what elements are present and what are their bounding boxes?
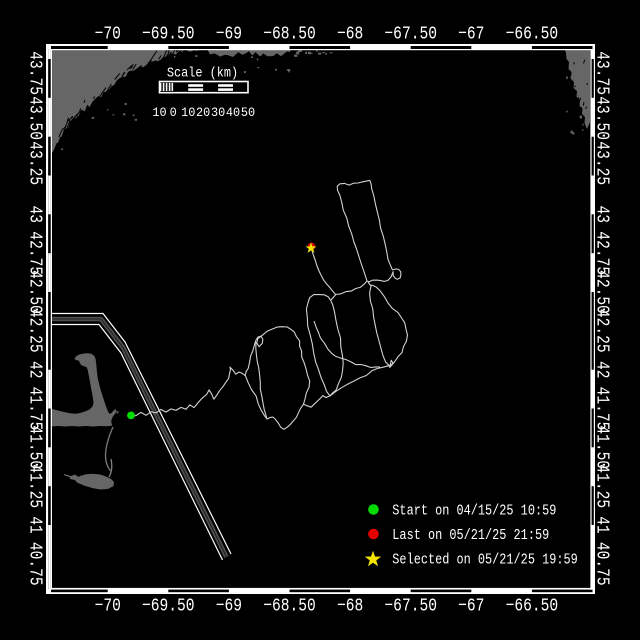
svg-text:−70: −70: [95, 23, 121, 44]
svg-text:41: 41: [25, 516, 46, 534]
svg-text:43.50: 43.50: [25, 96, 46, 140]
svg-text:43.75: 43.75: [25, 51, 46, 95]
svg-text:20: 20: [196, 106, 210, 121]
svg-text:−68.50: −68.50: [263, 595, 316, 616]
svg-text:0: 0: [170, 106, 177, 121]
svg-text:Last on 05/21/25 21:59: Last on 05/21/25 21:59: [392, 528, 549, 545]
svg-text:41.50: 41.50: [592, 425, 613, 469]
svg-text:43.25: 43.25: [592, 141, 613, 185]
svg-text:40.75: 40.75: [25, 542, 46, 586]
svg-text:42.75: 42.75: [592, 231, 613, 275]
svg-text:−67.50: −67.50: [384, 595, 437, 616]
svg-text:43: 43: [592, 206, 613, 224]
svg-text:30: 30: [211, 106, 225, 121]
svg-text:−68.50: −68.50: [263, 23, 316, 44]
svg-text:40: 40: [226, 106, 240, 121]
svg-text:Start on 04/15/25 10:59: Start on 04/15/25 10:59: [392, 503, 556, 520]
svg-text:−67.50: −67.50: [384, 23, 437, 44]
svg-text:Selected on 05/21/25 19:59: Selected on 05/21/25 19:59: [392, 552, 577, 569]
svg-text:43: 43: [25, 206, 46, 224]
svg-text:−68: −68: [337, 23, 363, 44]
svg-text:42.25: 42.25: [592, 309, 613, 353]
svg-text:41.75: 41.75: [592, 387, 613, 431]
svg-text:42: 42: [25, 361, 46, 379]
svg-text:10: 10: [152, 106, 166, 121]
svg-text:−66.50: −66.50: [506, 23, 559, 44]
svg-text:42.75: 42.75: [25, 231, 46, 275]
svg-text:50: 50: [241, 106, 255, 121]
svg-text:41.75: 41.75: [25, 387, 46, 431]
svg-text:42.50: 42.50: [592, 270, 613, 314]
svg-text:−67: −67: [458, 23, 484, 44]
svg-text:42: 42: [592, 361, 613, 379]
svg-text:42.25: 42.25: [25, 309, 46, 353]
svg-text:−70: −70: [95, 595, 121, 616]
svg-text:Scale (km): Scale (km): [167, 65, 238, 81]
svg-text:−69: −69: [216, 23, 242, 44]
svg-text:40.75: 40.75: [592, 542, 613, 586]
svg-text:−69: −69: [216, 595, 242, 616]
svg-text:−67: −67: [458, 595, 484, 616]
svg-text:41.25: 41.25: [25, 464, 46, 508]
svg-text:41: 41: [592, 516, 613, 534]
svg-text:41.25: 41.25: [592, 464, 613, 508]
svg-text:43.50: 43.50: [592, 96, 613, 140]
svg-text:−66.50: −66.50: [506, 595, 559, 616]
svg-text:10: 10: [181, 106, 195, 121]
svg-text:43.75: 43.75: [592, 51, 613, 95]
svg-text:41.50: 41.50: [25, 425, 46, 469]
svg-text:−68: −68: [337, 595, 363, 616]
svg-text:−69.50: −69.50: [142, 23, 195, 44]
svg-text:−69.50: −69.50: [142, 595, 195, 616]
svg-text:42.50: 42.50: [25, 270, 46, 314]
svg-text:43.25: 43.25: [25, 141, 46, 185]
